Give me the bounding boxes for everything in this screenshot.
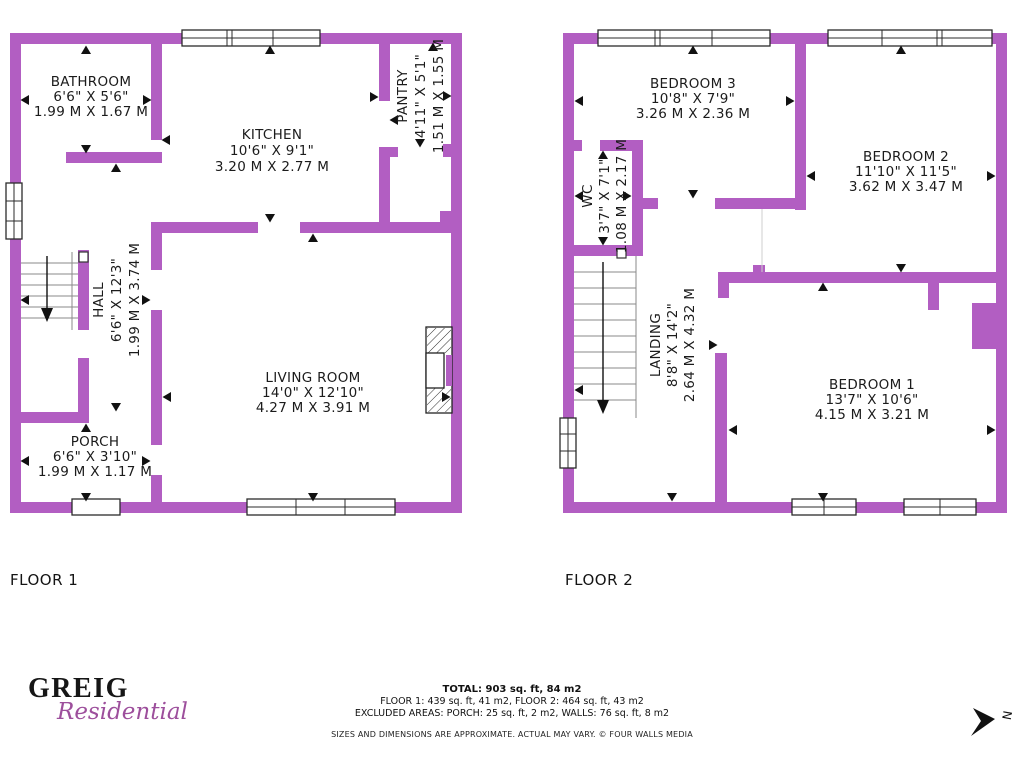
room-label: BEDROOM 1	[829, 377, 915, 393]
brand-logo: GREIG Residential	[28, 673, 188, 725]
compass-north-label: N	[999, 710, 1014, 721]
room-label: LIVING ROOM	[265, 370, 360, 386]
excluded-areas-line: EXCLUDED AREAS: PORCH: 25 sq. ft, 2 m2, …	[355, 708, 669, 719]
fireplace	[426, 327, 452, 413]
floor-plan-page: BATHROOM 6'6" X 5'6" 1.99 M X 1.67 M KIT…	[0, 0, 1024, 768]
window	[792, 499, 856, 515]
room-label: BATHROOM	[51, 74, 132, 90]
room-dims-imperial: 6'6" X 12'3"	[109, 258, 125, 342]
brand-subname: Residential	[56, 699, 188, 725]
area-summary: TOTAL: 903 sq. ft, 84 m2 FLOOR 1: 439 sq…	[331, 684, 693, 739]
window	[560, 418, 576, 468]
room-dims-metric: 3.20 M X 2.77 M	[215, 159, 329, 175]
room-dims-metric: 2.64 M X 4.32 M	[682, 288, 698, 402]
room-dims-imperial: 13'7" X 10'6"	[825, 392, 918, 408]
floor-areas-line: FLOOR 1: 439 sq. ft, 41 m2, FLOOR 2: 464…	[380, 696, 644, 707]
room-dims-imperial: 10'6" X 9'1"	[230, 143, 314, 159]
floor2-caption: FLOOR 2	[565, 571, 633, 589]
room-label: PORCH	[71, 434, 120, 450]
room-dims-imperial: 3'7" X 7'1"	[597, 158, 613, 233]
room-dims-imperial: 11'10" X 11'5"	[855, 164, 957, 180]
room-label: BEDROOM 2	[863, 149, 949, 165]
window	[182, 30, 320, 46]
floor2-plan: BEDROOM 3 10'8" X 7'9" 3.26 M X 2.36 M B…	[560, 30, 1007, 515]
stair-newel	[79, 252, 88, 262]
floor1-stairs	[21, 252, 88, 330]
room-dims-metric: 1.99 M X 1.67 M	[34, 104, 148, 120]
room-label: BEDROOM 3	[650, 76, 736, 92]
floor-plan-canvas: BATHROOM 6'6" X 5'6" 1.99 M X 1.67 M KIT…	[0, 0, 1024, 768]
room-dims-imperial: 14'0" X 12'10"	[262, 385, 364, 401]
floor1-plan: BATHROOM 6'6" X 5'6" 1.99 M X 1.67 M KIT…	[6, 30, 462, 515]
room-dims-metric: 1.51 M X 1.55 M	[431, 39, 447, 153]
room-dims-metric: 3.26 M X 2.36 M	[636, 106, 750, 122]
compass-icon: N	[971, 708, 1014, 736]
room-dims-metric: 1.08 M X 2.17 M	[614, 139, 630, 253]
window	[828, 30, 992, 46]
total-area-line: TOTAL: 903 sq. ft, 84 m2	[443, 684, 582, 695]
room-dims-imperial: 4'11" X 5'1"	[413, 54, 429, 138]
room-dims-metric: 4.15 M X 3.21 M	[815, 407, 929, 423]
disclaimer-line: SIZES AND DIMENSIONS ARE APPROXIMATE. AC…	[331, 730, 693, 739]
floor2-stairs	[574, 249, 636, 418]
room-label: WC	[580, 184, 596, 207]
floor1-caption: FLOOR 1	[10, 571, 78, 589]
room-label: LANDING	[648, 313, 664, 377]
window	[6, 183, 22, 239]
window	[247, 499, 395, 515]
room-label: HALL	[91, 282, 107, 318]
room-label: PANTRY	[395, 69, 411, 123]
room-dims-imperial: 10'8" X 7'9"	[651, 91, 735, 107]
room-dims-imperial: 8'8" X 14'2"	[665, 303, 681, 387]
room-label: KITCHEN	[242, 127, 303, 143]
room-dims-metric: 1.99 M X 3.74 M	[127, 243, 143, 357]
window	[904, 499, 976, 515]
room-dims-metric: 4.27 M X 3.91 M	[256, 400, 370, 416]
floor1-room-labels: BATHROOM 6'6" X 5'6" 1.99 M X 1.67 M KIT…	[34, 39, 447, 480]
compass-needle	[971, 708, 995, 736]
room-dims-metric: 1.99 M X 1.17 M	[38, 464, 152, 480]
room-dims-metric: 3.62 M X 3.47 M	[849, 179, 963, 195]
front-door	[72, 499, 120, 515]
room-dims-imperial: 6'6" X 5'6"	[53, 89, 128, 105]
room-dims-imperial: 6'6" X 3'10"	[53, 449, 137, 465]
window	[598, 30, 770, 46]
